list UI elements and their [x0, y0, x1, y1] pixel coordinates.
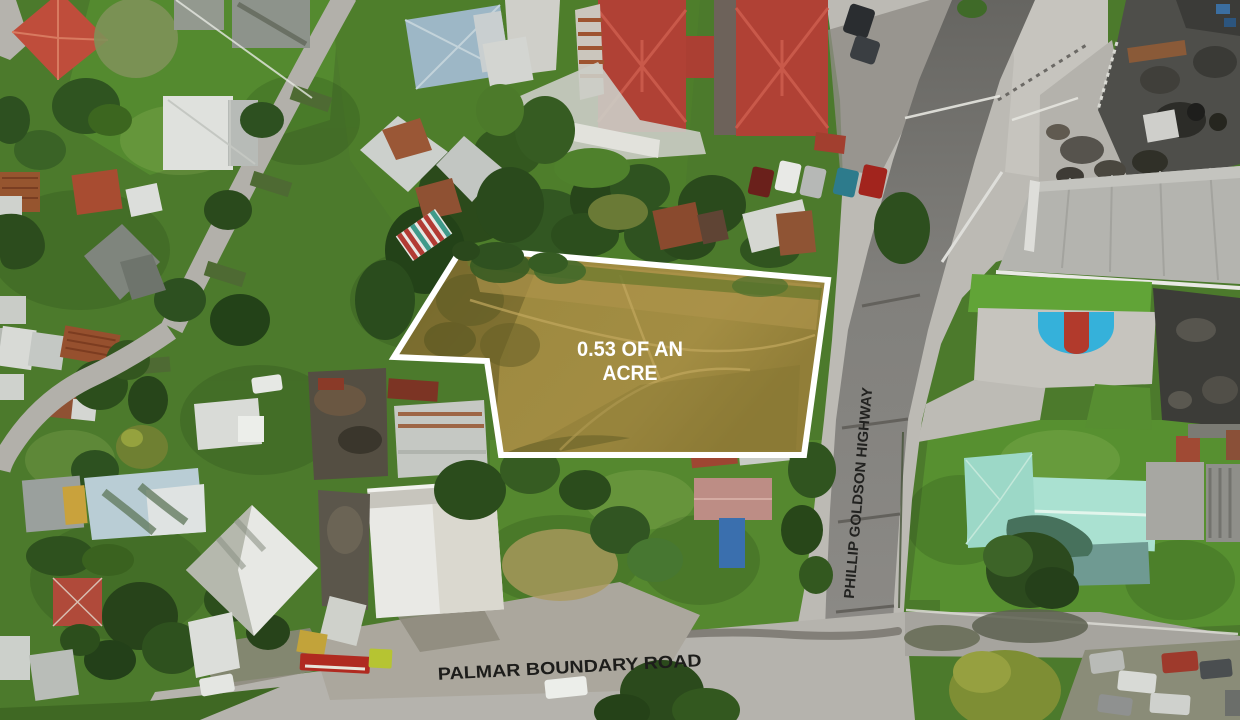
- svg-text:0.53 OF AN: 0.53 OF AN: [577, 338, 683, 361]
- svg-text:ACRE: ACRE: [603, 362, 658, 385]
